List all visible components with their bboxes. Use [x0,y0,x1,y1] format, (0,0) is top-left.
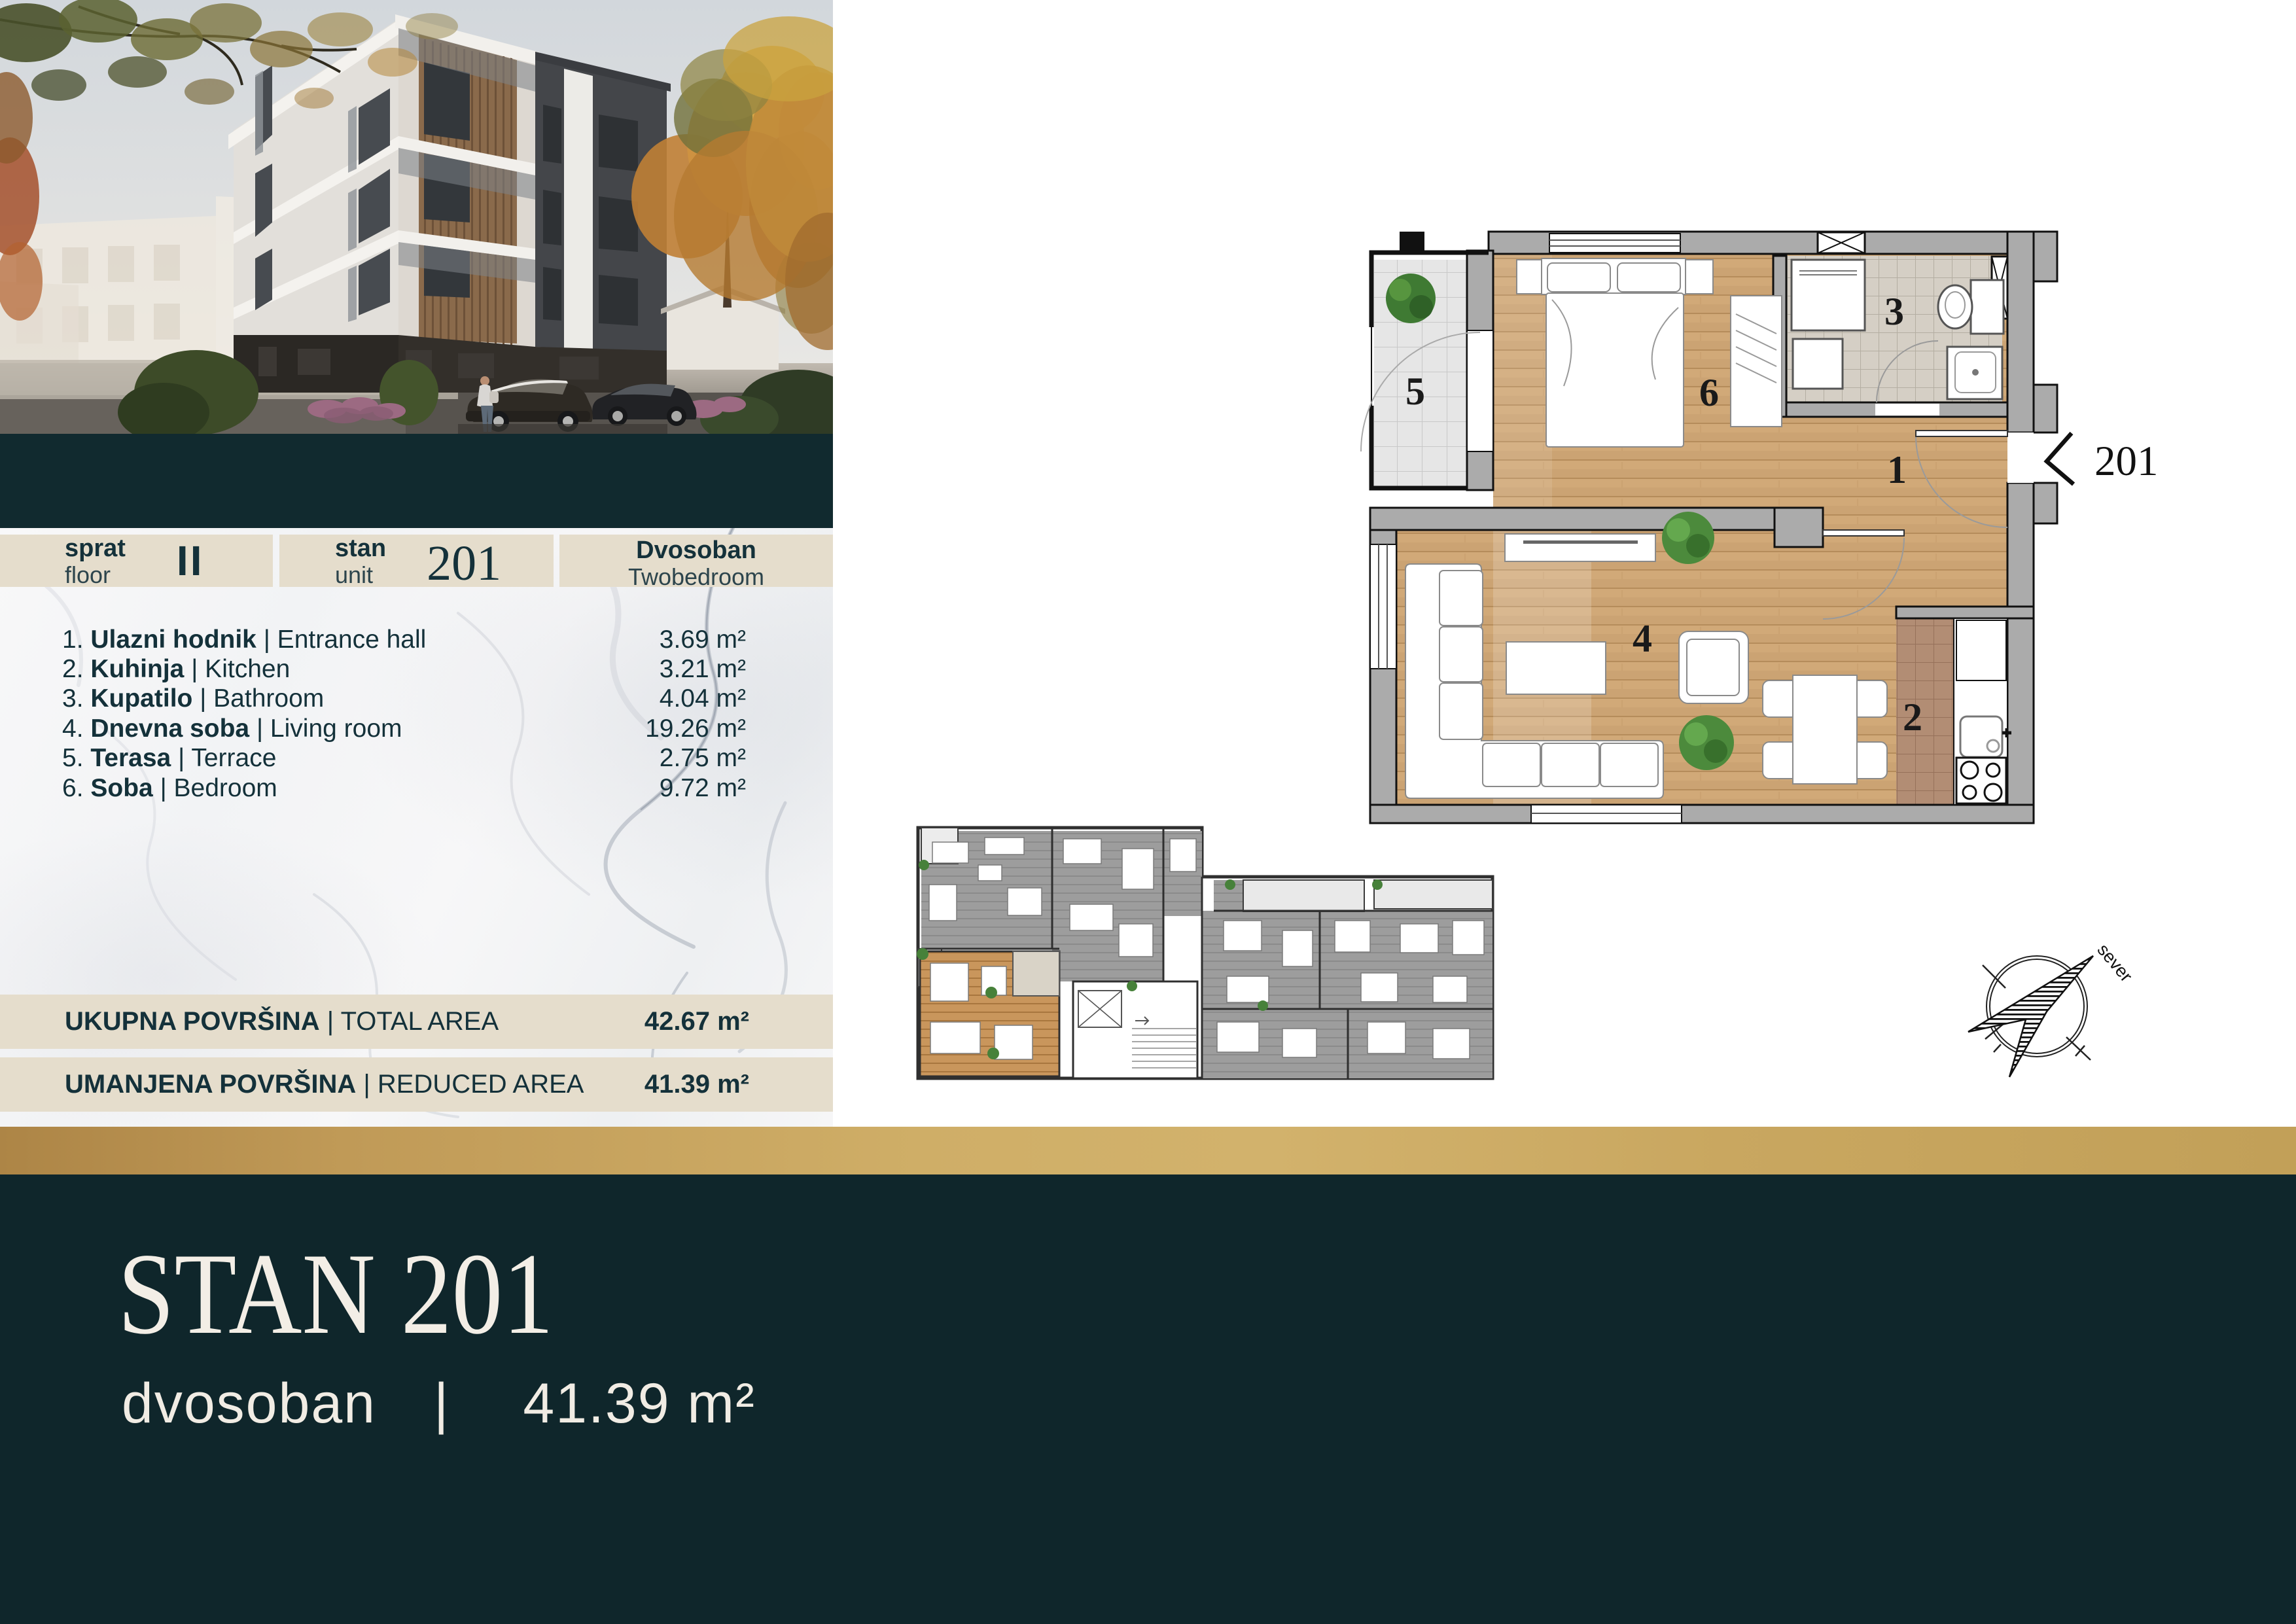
svg-text:5: 5 [1405,370,1425,413]
svg-text:6: 6 [1699,371,1719,414]
svg-text:4: 4 [1633,617,1652,660]
svg-text:3: 3 [1884,290,1904,333]
svg-text:2: 2 [1903,696,1922,739]
svg-text:201: 201 [2094,438,2159,485]
svg-text:sever: sever [2093,940,2136,986]
svg-text:1: 1 [1887,448,1907,491]
